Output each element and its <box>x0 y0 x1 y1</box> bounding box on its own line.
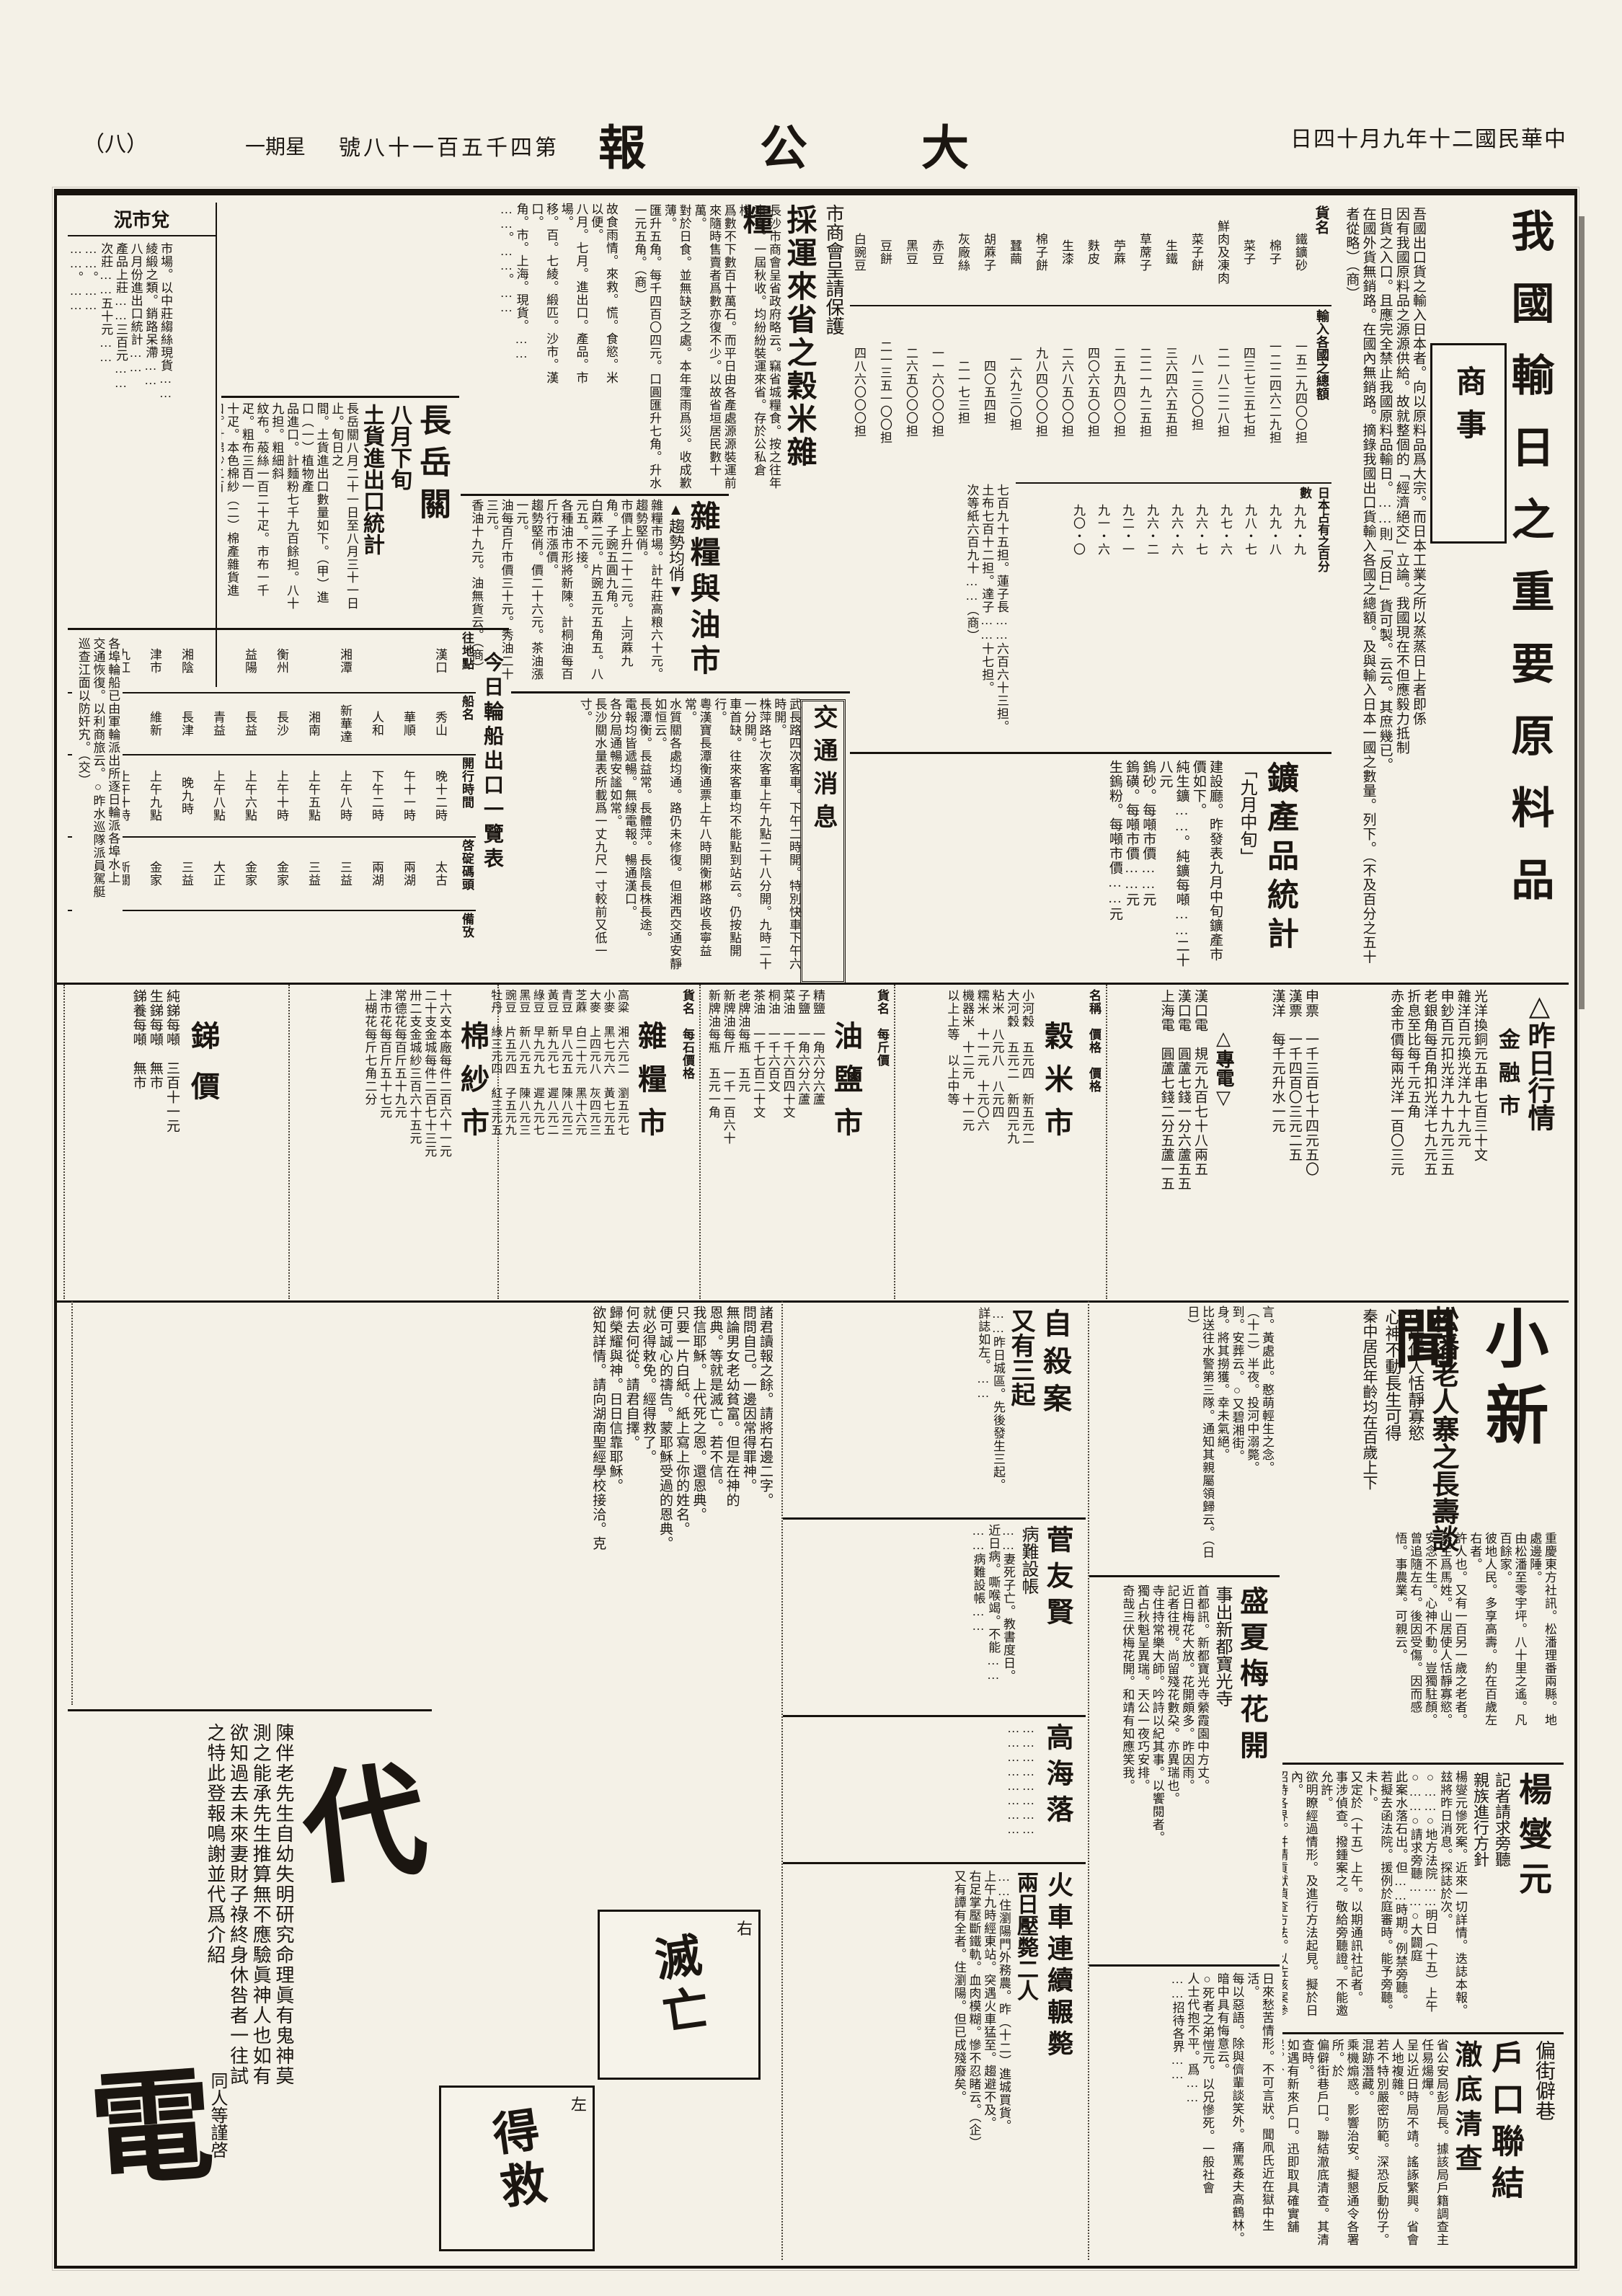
plum-body: 首都訊。新都寶光寺縈霞園中方丈。近日梅花大放。花開頗多。昨因雨。記者往視。尚留殘… <box>1120 1584 1209 1951</box>
ship-time: 上午五點 <box>288 757 320 835</box>
daidian-big-first: 代 <box>293 1720 432 1909</box>
ship-time: 上午九點 <box>130 757 161 835</box>
ship-destination: 湘陰 <box>161 631 193 691</box>
market-row: 桐油 一千六百文 <box>765 989 780 1295</box>
ship-time-band: 開行時間 晚十二時午十一時下午二時上午八時上午五點上午十時上午六點上午八點晚九時… <box>68 755 476 838</box>
gospel-body: 諸君讀報之餘。請將右邊二字。問問自己。一邊因常得罪神。無論男女老幼貧富。但是在神… <box>590 1306 774 1698</box>
quote-line: 光洋換銅元五串七百三十文 <box>1471 989 1488 1295</box>
antimony-rows: 純銻每噸 三百十一元生銻每噸 無市銻養每噸 無市 <box>130 989 180 1295</box>
text-column: 曾追隨左右。後因受傷。因而感悟。事農業。可親云。 <box>1392 1532 1422 1734</box>
ship-name: 青益 <box>193 695 225 753</box>
text-column: 右足掌壓斷鐵軌。血肉模糊。慘不忍睹云。（企） <box>966 1870 981 2252</box>
ship-berth: 太古 <box>415 839 447 908</box>
text-column: 鎢磺。每噸市價……元 <box>1123 760 1140 970</box>
market-row: 十六支本廠每件二百六十一元 <box>436 989 451 1295</box>
commodity-total: 二六八五〇〇担 <box>1047 309 1073 475</box>
text-column: 奇哉三伏梅花開。和靖有知應笑我。 <box>1120 1584 1135 1951</box>
quote-line: 漢票 一千四百〇三元二五 <box>1286 989 1303 1295</box>
ship-destination: 衡州 <box>257 631 288 691</box>
ship-name: 長益 <box>225 695 257 753</box>
news-column-right: 小新聞 松潘老人寨之長壽談 山居使人恬靜寡慾 心神不動長生可得 秦中居民年齡均在… <box>1282 1301 1564 2260</box>
ship-berths: 太古兩湖兩湖三益三益金家金家大正三益金家新關兩湖 <box>68 839 447 908</box>
text-column: 只要一片白紙。紙上寫上你的姓名。 <box>673 1306 690 1698</box>
changyue-body: 長岳關八月二十一日至八月三十一日止。旬日之間。土貨進出口數量如下。（甲）進口（一… <box>221 402 358 613</box>
ship-time: 晚十二時 <box>415 757 447 835</box>
text-column: 株萍路七次客車上午九點二十八分開。九時二十一分開。 <box>741 698 771 978</box>
ship-destination <box>288 631 320 691</box>
commodity-total: 二一三五一〇〇担 <box>866 309 892 475</box>
ship-berth-label: 啓碇碼頭 <box>458 839 476 908</box>
text-column: 彼地人民。多享高壽。約在百歲左右者。 <box>1467 1532 1497 1734</box>
chamber-kicker: 市商會呈請保護 <box>820 204 847 348</box>
text-column: ○死者之弟愷元。以兄慘死。一般社會 <box>1199 1972 1214 2255</box>
quotes-subtitle: 金融市 <box>1491 1028 1523 1287</box>
text-column: 長岳關八月二十一日至八月三十一日止。旬日之 <box>329 402 358 613</box>
changyue-headline: 長岳關 <box>409 404 455 613</box>
suicide-body: ……昨日城區。先後發生三起。詳誌如左。…… <box>975 1307 1005 1502</box>
ship-berth: 兩湖 <box>384 839 415 908</box>
text-column: 產品上莊……三百元…… <box>112 242 128 675</box>
market-row: 精鹽 一角六分六蘆 <box>810 989 825 1295</box>
text-column: ……招待各界…… <box>1169 1972 1184 2255</box>
census-headline: 戶口聯結 <box>1481 2040 1529 2249</box>
teacher-headline: 菅友賢 <box>1037 1525 1077 1670</box>
commodity-total: 二一七三担 <box>944 309 970 475</box>
text-column: 測之能承先生推算無不應驗眞神人也如有 <box>249 1723 272 2256</box>
commodity-pct: 九〇・〇 <box>1060 487 1085 573</box>
ship-name: 秀山 <box>415 695 447 753</box>
quotes-section: △昨日行情 金融市 光洋換銅元五串七百三十文雜洋百元換光洋九十九元申鈔百元扣光洋… <box>1325 985 1563 1299</box>
text-column: 趨勢堅俏。價二十六元。茶油漲一元。 <box>513 499 543 686</box>
ship-dest-label: 往地點 <box>458 631 476 691</box>
commodity-total: 九八四〇〇〇担 <box>1021 309 1047 475</box>
market-row: 高粱 湘六元二 瀏五元七 <box>614 989 629 1295</box>
market-row: 黑豆 新八元五 陳八元三 <box>516 989 531 1295</box>
rice-header: 名稱 價格 價格 <box>1085 989 1103 1295</box>
misc-grain-title: 雜糧市 <box>629 1021 670 1266</box>
ship-berth-band: 啓碇碼頭 太古兩湖兩湖三益三益金家金家大正三益金家新關兩湖 <box>68 838 476 911</box>
songpan-sub3: 秦中居民年齡均在百歲上下 <box>1359 1308 1381 1517</box>
market-row: 卅二支金城紗三百六十五元 <box>407 989 422 1295</box>
gospel-box-left-text: 得救 <box>476 2104 558 2233</box>
quote-line: 雜洋百元換光洋九十九元 <box>1455 989 1471 1295</box>
scan-edge-noise <box>1577 216 1585 1009</box>
commerce-headline: 我國輸日之重要原料品 <box>1507 208 1561 972</box>
commodity-name: 蠶繭 <box>996 205 1021 299</box>
text-column: 又有譚有全者。住瀏陽。但已成殘廢矣。 <box>951 1870 966 2252</box>
text-column: 暗中具有悔意云。 <box>1214 1972 1229 2255</box>
text-column: 對於日食。並無缺乏之處。本年霪雨爲災。收成歉薄。 <box>661 204 691 491</box>
ship-name: 新華達 <box>320 695 352 753</box>
suicide-headline: 自殺案 <box>1034 1308 1076 1445</box>
market-row: 小麥 黑七元六 黃七元五 <box>601 989 615 1295</box>
text-column: 若擬去函法院。援例於庭審時。能予旁聽。未卜。 <box>1362 1770 1392 2024</box>
ship-time: 上午八點 <box>193 757 225 835</box>
teacher-article: 菅友賢 病難設帳 ……妻死子亡。教書度日。近日病。嘶喉竭。不能…………病難設帳…… <box>783 1517 1086 1714</box>
gospel-box-left-label: 左 <box>571 2092 587 2115</box>
commodity-total: 四〇五四担 <box>970 309 996 475</box>
text-column: 陳伴老先生自幼失明研究命理眞有鬼神莫 <box>272 1723 295 2256</box>
commodity-total: 二一八二二八担 <box>1203 309 1229 475</box>
ship-table-title: 今日輪船出口一覽表 <box>477 652 506 969</box>
text-column: ……妻死子亡。教書度日。 <box>1000 1524 1015 1707</box>
market-row: 菜油 一千六百四十文 <box>780 989 795 1295</box>
text-column: 十疋。本色棉紗（二）棉產雜貨進口。計棉紗二百 <box>221 402 239 613</box>
wire-section: 申票 一千三百七十四元五〇漢票 一千四百〇三元二五漢洋 每千元升水一元 △專電▽… <box>1106 985 1324 1299</box>
text-column: 上午九時經東站。突遇火車猛至。趨避不及。 <box>981 1870 996 2252</box>
text-column: ○……○請求旁聽……○大闢庭 <box>1407 1770 1422 2024</box>
ship-berth: 金家 <box>130 839 161 908</box>
text-column: 生鎢粉。每噸市價……元 <box>1107 760 1123 970</box>
ship-times: 晚十二時午十一時下午二時上午八時上午五點上午十時上午六點上午八點晚九時上午九點上… <box>68 757 447 835</box>
page-frame: 我國輸日之重要原料品 商事 吾國出口貨之輸入日本者。向以原料品爲大宗。而日本工業… <box>54 189 1577 2269</box>
text-column: 移。百。七綾。緞匹。沙市。漢口。 <box>528 203 558 389</box>
text-column: ……病難設帳…… <box>970 1524 985 1707</box>
market-row: 黃豆 新九元七 遲八元二 <box>544 989 559 1295</box>
text-column: 故食雨情。來救。慌。食慾。米以便。 <box>588 203 618 389</box>
silk-report-title: 況市兌 <box>68 203 216 236</box>
train-body: ……住瀏陽門外務農。昨（十二）進城買貨。上午九時經東站。突遇火車猛至。趨避不及。… <box>951 1870 1011 2252</box>
yarn-title: 棉紗市 <box>451 1021 493 1266</box>
plum-article: 盛夏梅花開 事出新都寶光寺 首都訊。新都寶光寺縈霞園中方丈。近日梅花大放。花開頗… <box>1089 1575 1280 1959</box>
text-column: 近日梅花大放。花開頗多。昨因雨。 <box>1179 1584 1195 1951</box>
ship-name-label: 船名 <box>458 695 476 753</box>
market-row: 純銻每噸 三百十一元 <box>164 989 180 1295</box>
market-row: 小河穀 五元四 新五元二 <box>1019 989 1034 1295</box>
market-row: 常德花每百斤五十九元 <box>391 989 407 1295</box>
text-column: 人士代抱不平。爲…… <box>1184 1972 1200 2255</box>
news-items: 言。黃處此。憨萌輕生之念。（十二）半夜。投河中溺斃。到。安葬云。○又碧湘街。身。… <box>1184 1306 1274 1565</box>
commodity-total: 一二二四六二九担 <box>1255 309 1281 475</box>
text-column: 如遇有新來戶口。迅即取具確實舖保。分 <box>1282 2039 1299 2255</box>
commodity-names: 鐵鑛砂棉子菜子鮮肉及凍肉菜子餅生鐵草蓆子苧蔴麩皮生漆棉子餅蠶繭胡蔴子灰廠絲赤豆黑… <box>850 205 1307 299</box>
market-row: 上楜花每斤七角二分 <box>362 989 377 1295</box>
gospel-box-left: 左 得救 <box>439 2086 595 2251</box>
yang-sub2: 親族進行方針 <box>1468 1772 1492 1931</box>
misc-grain-rows: 高粱 湘六元二 瀏五元七小麥 黑七元六 黃七元五大麥 上四元八 灰四元三芝蔴 白… <box>488 989 629 1295</box>
quote-line: 赤金市價每兩光洋一百〇三元 <box>1388 989 1404 1295</box>
songpan-body: 重慶東方社訊。松潘理番兩縣。地處邊陲。由松潘至零宇坪。八十里之遙。凡百餘家。彼地… <box>1392 1532 1556 1734</box>
text-column: 楊燮元慘死案。近來一切詳情。迭誌本報。 <box>1452 1770 1467 2024</box>
ship-berth: 金家 <box>257 839 288 908</box>
commodity-name: 鮮肉及凍肉 <box>1203 205 1229 299</box>
market-row: 茶油 一千七百二十文 <box>750 989 765 1295</box>
antimony-title: 銻價 <box>182 1021 223 1266</box>
text-column: 粵漢寶長潭衡通票上午八時開衡郴路收長寧益常。 <box>681 698 711 978</box>
text-column: 到。安葬云。○又碧湘街。 <box>1229 1306 1244 1565</box>
ship-remark-label: 備攷 <box>458 913 476 980</box>
commodity-pct: 九六・七 <box>1183 487 1207 573</box>
yang-article: 楊燮元 記者請求旁聽 親族進行方針 楊燮元慘死案。近來一切詳情。迭誌本報。玆將昨… <box>1282 1763 1564 2031</box>
market-row: 老牌油每瓶 五元 <box>735 989 750 1295</box>
ship-names: 秀山華順人和新華達湘南長沙長益青益長津維新源通 <box>68 695 447 753</box>
commerce-tail: 七百九十五担。蓮子長……六百六十三担。土布七百十二担。達子……十七担。次等紙六百… <box>850 484 1009 743</box>
text-column: 重慶東方社訊。松潘理番兩縣。地處邊陲。 <box>1527 1532 1556 1734</box>
text-column: 言。黃處此。憨萌輕生之念。 <box>1259 1306 1274 1565</box>
misc-grain-market: 貨名 每石價格 雜糧市 高粱 湘六元二 瀏五元七小麥 黑七元六 黃七元五大麥 上… <box>497 985 699 1299</box>
mining-lines: 建設廳。昨發表九月中旬鑛產市價如下。純生鑛……。純鑛每噸……二十八元鎢砂。每噸市… <box>1107 760 1223 970</box>
text-column: 此案水落石出。但……時期。例禁旁聽。 <box>1392 1770 1407 2024</box>
yang-sub1: 記者請求旁聽 <box>1490 1772 1513 1931</box>
text-column: 角。市。上海。現貨。…… <box>513 203 528 389</box>
market-row: 綠豆 早九元九 遲九元七 <box>530 989 544 1295</box>
commodity-name: 生鐵 <box>1151 205 1177 299</box>
commodity-names-label: 貨名 <box>1311 205 1331 299</box>
text-column: 間。土貨進出口數量如下。（甲）進口（一）植物產 <box>298 402 328 613</box>
shangshi-box: 商事 <box>1430 343 1507 544</box>
text-column: 每以惡語。除與儕輩談笑外。痛罵姦夫高鶴林。 <box>1229 1972 1244 2255</box>
commodity-pct: 九八・七 <box>1232 487 1257 573</box>
quote-line: 申票 一千三百七十四元五〇 <box>1303 989 1319 1295</box>
text-column: …………………… <box>1006 1721 1021 1854</box>
weekday-label: 一期星 <box>245 131 306 160</box>
plum-sub: 事出新都寶光寺 <box>1210 1586 1235 1802</box>
rice-title: 穀米市 <box>1035 1021 1077 1266</box>
text-column: 吾國出口貨之輸入日本者。向以原料品爲大宗。而日本工業之所以蒸蒸日上者即係 <box>1410 207 1427 975</box>
market-row: 二十支金城每件二百七十三元 <box>422 989 437 1295</box>
silk-report-body: 市場。以中莊縐絲現貨……綾緞之類。銷路呆滯……八月份進出口統計……產品上莊……三… <box>68 242 172 675</box>
gospel-box-right-label: 右 <box>737 1916 753 1939</box>
text-column: 無論男女老幼貧富。但是在神的 <box>723 1306 740 1698</box>
commodity-name: 生漆 <box>1047 205 1073 299</box>
text-column: 車首缺。往來客車均不能點到站云。仍按點開行。 <box>712 698 741 978</box>
text-column: 雜糧市場。計牛莊高粮六十元。趨勢堅俏。 <box>633 499 662 686</box>
commodity-total: 四三七三五七担 <box>1229 309 1255 475</box>
text-column: 各埠輪船已由軍輪派出所逐日輪派各埠水上 <box>105 637 120 976</box>
text-column: 紋布。蒰絲一百二十疋。市布一千疋。粗布三百一 <box>239 402 268 613</box>
commerce-intro: 吾國出口貨之輸入日本者。向以原料品爲大宗。而日本工業之所以蒸蒸日上者即係因有我國… <box>1334 207 1427 975</box>
market-row: 生銻每噸 無市 <box>147 989 164 1295</box>
commodity-name: 赤豆 <box>918 205 944 299</box>
commodity-totals-label: 輸入各國之總額 <box>1313 309 1331 475</box>
commodity-name: 棉子 <box>1255 205 1281 299</box>
commodity-total: 二五九四〇〇担 <box>1099 309 1125 475</box>
text-column: 事實。一屆秋收。均紛紛裝運來省。存於公私倉棧。 <box>736 204 766 491</box>
commodity-pct: 九二・一 <box>1109 487 1134 573</box>
text-column: 日貨之入口。且應完全禁止我國原料品輸日。……則「反日」貨可製。云云。其庶幾已。 <box>1376 207 1393 975</box>
text-column: 由松潘至零宇坪。八十里之遙。凡百餘家。 <box>1497 1532 1526 1734</box>
text-column: ……昨日城區。先後發生三起。 <box>990 1307 1005 1502</box>
traffic-section: 交通消息 武長路四次客車。下午二時開。特別快車下午六時開。株萍路七次客車上午九點… <box>511 691 850 983</box>
text-column: 次莊……五十元…… <box>97 242 112 675</box>
text-column: 獨占秋魁呈異瑞。天公一夜巧安排。 <box>1134 1584 1149 1951</box>
commodity-total: 二六五〇〇〇担 <box>892 309 918 475</box>
text-column: 次等紙六百九十……（商） <box>964 484 979 743</box>
text-column: ○……○地方法院……明日（十五）上午 <box>1422 1770 1437 2024</box>
text-column: 七百九十五担。蓮子長……六百六十三担。 <box>993 484 1009 743</box>
commodity-pct: 九六・六 <box>1158 487 1183 573</box>
text-column: 乘機煽惑。影響治安。擬懇通令各署所。於 <box>1329 2039 1358 2255</box>
commodity-pct: 九七・六 <box>1207 487 1232 573</box>
teacher-sub: 病難設帳 <box>1016 1525 1041 1670</box>
market-row: 以上上等 以上中等 <box>944 989 960 1295</box>
commodity-pct: 九九・九 <box>1281 487 1306 573</box>
oil-salt-rows: 精鹽 一角六分六蘆子鹽 一角六分六蘆菜油 一千六百四十文桐油 一千六百文茶油 一… <box>705 989 825 1295</box>
ship-destination: 湘潭 <box>320 631 352 691</box>
quotes-title: △昨日行情 <box>1519 989 1559 1292</box>
yang-headline: 楊燮元 <box>1509 1772 1556 1959</box>
commodity-name: 白豌豆 <box>850 205 866 299</box>
suicide-sub: 又有三起 <box>1003 1308 1038 1445</box>
text-column: 長沙市商會呈省政府略云。竊省城糧食。按之往年 <box>766 204 781 491</box>
mining-subtitle: 「九月中旬」 <box>1234 761 1259 970</box>
changyue-sub: 八月下旬 <box>383 404 415 613</box>
ship-name: 長津 <box>161 695 193 753</box>
page-number: （八） <box>83 126 148 158</box>
quote-line: 上海電 圓蘆七錢二分五蘆一五 <box>1158 989 1174 1295</box>
text-column: 身。將其撈獲。幸未氣絕。 <box>1214 1306 1229 1565</box>
market-row: 子鹽 一角六分六蘆 <box>795 989 810 1295</box>
ship-name-band: 船名 秀山華順人和新華達湘南長沙長益青益長津維新源通 <box>68 693 476 755</box>
text-column: 各分局通暢安謐如常。 <box>606 698 621 978</box>
ship-table-note: 各埠輪船已由軍輪派出所逐日輪派各埠水上交通恢復。以利商旅云。○昨水巡隊派員駕艇巡… <box>72 637 123 976</box>
text-column: 爲數不下數百十萬石。而平日由各產處源源裝運前 <box>721 204 736 491</box>
plum-headline: 盛夏梅花開 <box>1231 1586 1272 1824</box>
market-row: 機器米 十二元 十一元 <box>959 989 974 1295</box>
ship-time: 上午十時 <box>257 757 288 835</box>
text-column: 我信耶穌。上代死之恩。還恩典。 <box>690 1306 706 1698</box>
ship-time-label: 開行時間 <box>458 757 476 835</box>
text-column: 來隨時售賣者爲數亦復不少。以故省垣居民數十萬。 <box>691 204 721 491</box>
commodity-totals: 一五二九四〇〇担一二二四六二九担四三七三五七担二一八二二八担八一三〇〇担三六四六… <box>850 309 1307 475</box>
masthead-title: 報 公 大 <box>598 110 1002 179</box>
commodity-name: 草蓆子 <box>1125 205 1151 299</box>
market-row: 糯米 十一元 十元〇六 <box>974 989 989 1295</box>
text-column: ……。…… <box>83 242 98 675</box>
yarn-market: 棉紗市 十六支本廠每件二百六十一元二十支金城每件二百七十三元卅二支金城紗三百六十… <box>288 985 497 1299</box>
text-column: 長潭衡。長益常。長體萍。長陰長株長途。 <box>637 698 652 978</box>
daidian-signature: 同人等謹啓 <box>205 2072 230 2252</box>
market-row: 大河穀 五元二 新四元九 <box>1004 989 1019 1295</box>
text-column: ……。…… <box>68 242 83 675</box>
text-column: 建設廳。昨發表九月中旬鑛產市價如下。 <box>1190 760 1223 970</box>
quote-line: 折息至比每千元五角 <box>1404 989 1421 1295</box>
text-column: 偏僻街巷戶口。聯結澈底清查。其清查時。 <box>1299 2039 1329 2255</box>
ship-destination <box>193 631 225 691</box>
text-column: 歸榮耀與神。日日信靠耶穌。 <box>606 1306 623 1698</box>
text-column: 白蔴二元。片豌五元五角五。八元五。不接。 <box>573 499 603 686</box>
commodity-name: 黑豆 <box>892 205 918 299</box>
text-column: 在國外貨無銷路。在國內無銷路。摘錄我國出口貨輸入各國之總額。及與輸入日本一國之數… <box>1343 207 1376 975</box>
wire-lines: 漢口電 規元九百七十八兩五漢口電 圓蘆七錢一分六蘆五五上海電 圓蘆七錢二分五蘆一… <box>1158 989 1208 1295</box>
publication-date: 日四十月九年十二國民華中 <box>1290 121 1567 153</box>
ship-berth: 兩湖 <box>352 839 384 908</box>
grain-oil-kicker: ▲趨勢均俏▼ <box>664 500 687 686</box>
chamber-article: 市商會呈請保護 採運來省之穀米雜糧 長沙市商會呈省政府略云。竊省城糧食。按之往年… <box>623 203 850 492</box>
text-column: 八月份進出口統計…… <box>128 242 143 675</box>
text-column: 巡查江面以防奸宄。（交） <box>75 637 90 976</box>
mining-headline: 鑛產品統計 <box>1257 761 1303 970</box>
commodity-total: 八一三〇〇担 <box>1177 309 1203 475</box>
quote-line: 漢洋 每千元升水一元 <box>1269 989 1285 1295</box>
ship-name: 華順 <box>384 695 415 753</box>
commodity-name: 鐵鑛砂 <box>1281 205 1307 299</box>
gao-body: ………………………………………… <box>1006 1721 1035 1854</box>
commodity-name: 豆餅 <box>866 205 892 299</box>
text-column: 又定於（十五）上午。以期通訊社記者。 <box>1347 1770 1362 2024</box>
rice-rows: 小河穀 五元四 新五元二大河穀 五元二 新四元九粘米 八元八 八元四糯米 十一元… <box>944 989 1034 1295</box>
train-article: 火車連續輾斃 兩日壓斃二人 ……住瀏陽門外務農。昨（十二）進城買貨。上午九時經東… <box>783 1862 1086 2260</box>
text-column: 交通恢復。以利商旅云。○昨水巡隊派員駕艇 <box>90 637 105 976</box>
songpan-sub1: 山居使人恬靜寡慾 <box>1402 1308 1427 1481</box>
ship-destination <box>352 631 384 691</box>
text-column: 恩典。等就是滅亡。若不信。 <box>706 1306 723 1698</box>
text-column: 品進口。計麵粉七千九百餘担。八十九担。粗細斜 <box>269 402 298 613</box>
ship-table: 今日輪船出口一覽表 往地點 漢口湘潭衡州益陽湘陰津市九江常德 船名 秀山華順人和… <box>68 628 509 983</box>
text-column: 鎢砂。每噸市價……元 <box>1140 760 1156 970</box>
text-column: 問問自己。一邊因常得罪神。 <box>740 1306 757 1698</box>
mining-section: 鑛產品統計 「九月中旬」 建設廳。昨發表九月中旬鑛產市價如下。純生鑛……。純鑛每… <box>850 752 1331 975</box>
ship-destination <box>384 631 415 691</box>
quotes-lines: 光洋換銅元五串七百三十文雜洋百元換光洋九十九元申鈔百元扣光洋九十九元三五老銀角每… <box>1388 989 1488 1295</box>
text-column: 武長路四次客車。下午二時開。特別快車下午六時開。 <box>771 698 801 978</box>
commodity-total: 三六四六五五担 <box>1151 309 1177 475</box>
text-column: 市價上升二十二元。上河蔴九角。子豌五圓九角。 <box>603 499 632 686</box>
misc-grain-header: 貨名 每石價格 <box>678 989 696 1295</box>
ship-time: 午十一時 <box>384 757 415 835</box>
text-column: 電報均皆遞暢。無線電報。暢通漢口。 <box>621 698 637 978</box>
chamber-body: 長沙市商會呈省政府略云。竊省城糧食。按之往年事實。一屆秋收。均紛紛裝運來省。存於… <box>631 204 781 491</box>
text-column: 比送往水警第三隊。通知其親屬領歸云。（日日） <box>1184 1306 1214 1565</box>
ship-dest-band: 往地點 漢口湘潭衡州益陽湘陰津市九江常德 <box>68 630 476 693</box>
market-row: 芝蔴 白二十元 黑十六元 <box>572 989 587 1295</box>
silk-market-report: 況市兌 市場。以中莊縐絲現貨……綾緞之類。銷路呆滯……八月份進出口統計……產品上… <box>68 203 217 687</box>
text-column: 日來愁苦情形。不可言狀。聞凧氏近在獄中生活。 <box>1244 1972 1274 2255</box>
commodity-pcts-band: 日本占有之百分數 九九・九九九・八九八・七九七・六九六・七九六・六九六・二九二・… <box>1016 482 1331 576</box>
text-column: 八月。七月。進出口。產品。市場。 <box>558 203 588 389</box>
text-column: ……住瀏陽門外務農。昨（十二）進城買貨。 <box>996 1870 1011 2252</box>
ship-name: 湘南 <box>288 695 320 753</box>
newspaper-page: （八） 一期星 號八十一百五千四第 報 公 大 日四十月九年十二國民華中 我國輸… <box>0 0 1622 2296</box>
traffic-body: 武長路四次客車。下午二時開。特別快車下午六時開。株萍路七次客車上午九點二十八分開… <box>577 698 801 978</box>
market-row: 新牌油每瓶 五元一角 <box>705 989 720 1295</box>
oil-salt-title: 油鹽市 <box>825 1021 867 1266</box>
commodity-total: 一一六〇〇〇担 <box>918 309 944 475</box>
census-body: 省公安局彭局長。據該局戶籍調查主任易煬㷸。呈以近日時局不靖。謠諑繁興。省會人地複… <box>1282 2039 1448 2255</box>
ship-berth: 三益 <box>320 839 352 908</box>
ship-remark-band: 備攷 <box>68 911 476 982</box>
commodity-total: 二二一九二五担 <box>1125 309 1151 475</box>
ship-time: 上午八時 <box>320 757 352 835</box>
commodity-total: 一五二九四〇〇担 <box>1281 309 1307 475</box>
text-column: 何去何從。請君自擇。 <box>623 1306 639 1698</box>
quote-line: 老銀角每百角扣光洋七九元五 <box>1421 989 1437 1295</box>
market-row: 粘米 八元八 八元四 <box>989 989 1004 1295</box>
gao-article: 高海落 ………………………………………… <box>783 1715 1086 1861</box>
commodity-name: 麩皮 <box>1073 205 1099 299</box>
commodity-pcts: 九九・九九九・八九八・七九七・六九六・七九六・六九六・二九二・一九一・六九〇・〇 <box>1060 487 1306 573</box>
commodity-pct: 九一・六 <box>1085 487 1109 573</box>
commodity-pct: 九九・八 <box>1257 487 1281 573</box>
issue-number: 號八十一百五千四第 <box>339 130 559 161</box>
text-column: 事涉偵查。撥鍾案之。敬給旁聽證。不能邀允許。 <box>1318 1770 1347 2024</box>
commodity-pct: 九六・二 <box>1134 487 1158 573</box>
commodity-name: 菜子 <box>1229 205 1255 299</box>
ship-time: 下午二時 <box>352 757 384 835</box>
census-article: 偏街僻巷 戶口聯結 澈底清查 省公安局彭局長。據該局戶籍調查主任易煬㷸。呈以近日… <box>1282 2032 1564 2260</box>
commodity-name: 苧蔴 <box>1099 205 1125 299</box>
census-sub: 澈底清查 <box>1446 2040 1486 2249</box>
text-column: 寺住持常樂大師。吟詩以紀其事。以饗閱者。 <box>1149 1584 1164 1951</box>
text-column: 長沙關水量表所載爲一丈九尺一寸較前又低一寸。 <box>577 698 606 978</box>
market-band: △昨日行情 金融市 光洋換銅元五串七百三十文雜洋百元換光洋九十九元申鈔百元扣光洋… <box>57 983 1569 1303</box>
text-column: 各種油市形將新陳。計桐油每百斤行市漲價。 <box>543 499 572 686</box>
market-row: 新牌油每斤 一千一百六十 <box>720 989 735 1295</box>
text-column: 諸君讀報之餘。請將右邊二字。 <box>757 1306 774 1698</box>
commodity-total: 一六九三〇担 <box>996 309 1021 475</box>
ship-dests: 漢口湘潭衡州益陽湘陰津市九江常德 <box>68 631 447 691</box>
census-kicker: 偏街僻巷 <box>1529 2040 1558 2184</box>
